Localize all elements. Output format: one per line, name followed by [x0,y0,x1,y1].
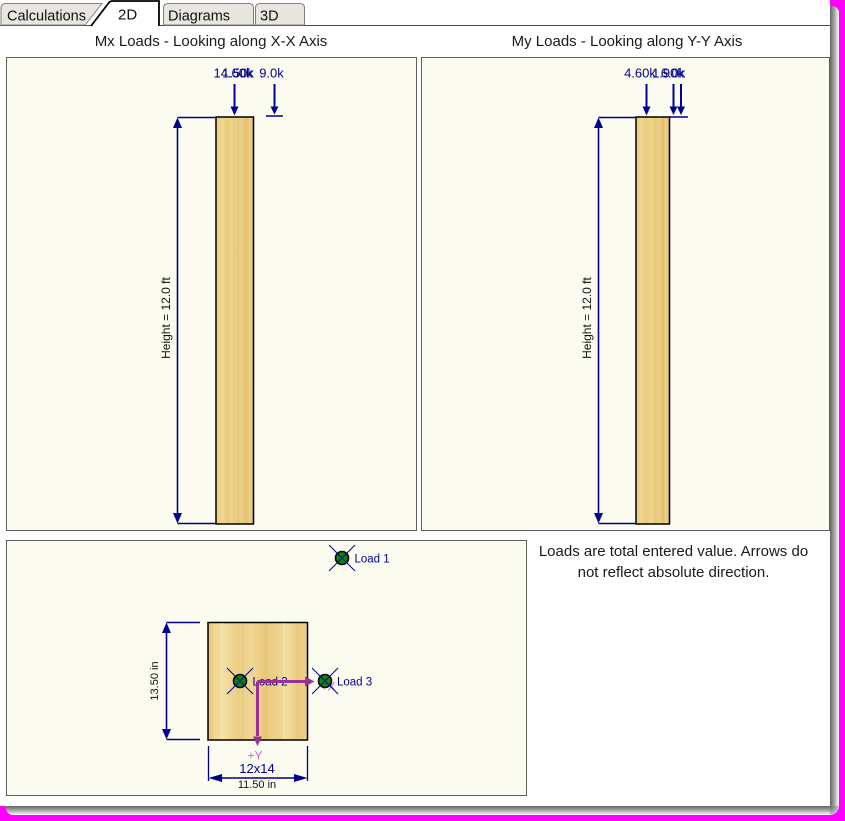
svg-text:Height = 12.0 ft: Height = 12.0 ft [580,276,594,358]
svg-text:Height = 12.0 ft: Height = 12.0 ft [159,276,173,358]
svg-text:Mx Loads - Looking along X-X A: Mx Loads - Looking along X-X Axis [95,33,328,50]
svg-text:3D: 3D [260,9,279,25]
svg-text:2D: 2D [118,7,137,24]
svg-text:Diagrams: Diagrams [168,9,230,25]
svg-text:Loads are total entered value.: Loads are total entered value. Arrows do [539,543,808,560]
svg-text:9.0k: 9.0k [259,66,284,81]
svg-text:13.50 in: 13.50 in [149,661,161,700]
svg-text:11.50 in: 11.50 in [238,779,276,791]
svg-text:My Loads - Looking along Y-Y A: My Loads - Looking along Y-Y Axis [512,33,743,50]
svg-text:Calculations: Calculations [7,9,86,25]
svg-text:6.0k: 6.0k [661,66,686,81]
svg-text:12x14: 12x14 [239,761,274,776]
svg-text:not reflect absolute direction: not reflect absolute direction. [578,564,770,581]
svg-text:1.50k: 1.50k [222,66,254,81]
svg-text:Load 1: Load 1 [355,554,390,566]
svg-text:Load 3: Load 3 [337,677,372,689]
